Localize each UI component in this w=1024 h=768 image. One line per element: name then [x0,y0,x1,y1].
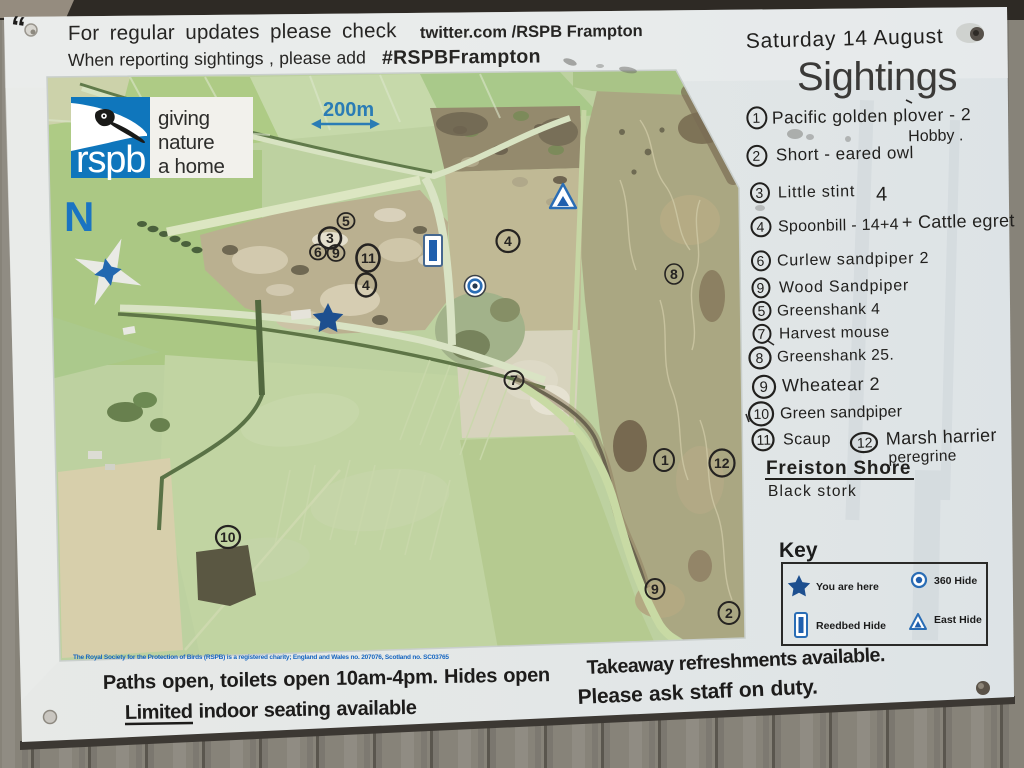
svg-text:7: 7 [757,326,765,342]
svg-text:You are here: You are here [816,581,879,593]
svg-text:giving: giving [158,107,210,130]
svg-text:Wood Sandpiper: Wood Sandpiper [779,277,909,296]
svg-text:Green sandpiper: Green sandpiper [780,403,903,422]
svg-text:Reedbed Hide: Reedbed Hide [816,620,886,632]
svg-text:Greenshank 25.: Greenshank 25. [777,347,895,366]
svg-text:Short - eared owl: Short - eared owl [776,143,914,164]
svg-text:9: 9 [759,379,768,396]
svg-text:12: 12 [714,455,730,471]
svg-text:9: 9 [756,280,764,296]
svg-text:Scaup: Scaup [783,431,831,449]
svg-text:For regular updates please che: For regular updates please check [68,19,397,45]
svg-text:4: 4 [504,233,512,249]
svg-text:3: 3 [755,185,763,201]
svg-text:Hobby .: Hobby . [908,127,963,145]
svg-text:11: 11 [756,432,771,448]
svg-text:10: 10 [753,406,769,422]
svg-text:twitter.com /RSPB Frampton: twitter.com /RSPB Frampton [420,22,643,42]
svg-text:11: 11 [361,250,376,266]
svg-text:+ Cattle egret: + Cattle egret [902,210,1015,232]
svg-text:8: 8 [670,266,678,282]
svg-text:East Hide: East Hide [934,614,982,626]
svg-text:The Royal Society for the Prot: The Royal Society for the Protection of … [73,654,449,661]
svg-text:2: 2 [752,148,760,164]
svg-text:1: 1 [661,452,669,468]
svg-text:N: N [64,193,94,240]
svg-text:10: 10 [220,529,236,545]
svg-text:2: 2 [725,605,733,621]
svg-text:12: 12 [857,434,873,451]
svg-text:3: 3 [326,230,334,246]
svg-text:Harvest mouse: Harvest mouse [779,324,890,343]
svg-text:360 Hide: 360 Hide [934,575,977,587]
svg-text:5: 5 [342,213,350,229]
svg-text:When reporting sightings , ple: When reporting sightings , please add [68,47,366,70]
svg-text:Sightings: Sightings [797,55,957,99]
svg-text:Black stork: Black stork [768,483,857,500]
svg-text:6: 6 [314,244,322,260]
svg-text:Freiston Shore: Freiston Shore [766,458,911,479]
svg-text:Little stint: Little stint [778,183,855,201]
svg-text:4: 4 [756,219,764,235]
svg-text:6: 6 [756,253,764,269]
svg-text:8: 8 [755,350,763,366]
svg-text:Key: Key [779,539,818,562]
svg-text:rspb: rspb [76,139,145,181]
svg-text:Spoonbill - 14+4: Spoonbill - 14+4 [778,216,899,235]
svg-text:4: 4 [876,184,888,206]
svg-text:9: 9 [332,245,340,261]
svg-text:9: 9 [651,581,659,597]
svg-text:7: 7 [510,372,518,388]
svg-text:nature: nature [158,131,214,154]
svg-text:1: 1 [752,110,760,126]
svg-text:200m: 200m [323,99,374,121]
svg-text:#RSPBFrampton: #RSPBFrampton [382,46,541,69]
svg-text:5: 5 [757,303,765,319]
svg-text:Pacific golden plover - 2: Pacific golden plover - 2 [772,104,972,127]
svg-text:Greenshank 4: Greenshank 4 [777,301,881,320]
svg-text:4: 4 [362,277,370,293]
svg-text:Curlew sandpiper 2: Curlew sandpiper 2 [777,250,930,270]
svg-text:a home: a home [158,155,225,178]
svg-text:Wheatear 2: Wheatear 2 [782,374,880,396]
svg-text:Marsh harrier: Marsh harrier [885,425,997,449]
